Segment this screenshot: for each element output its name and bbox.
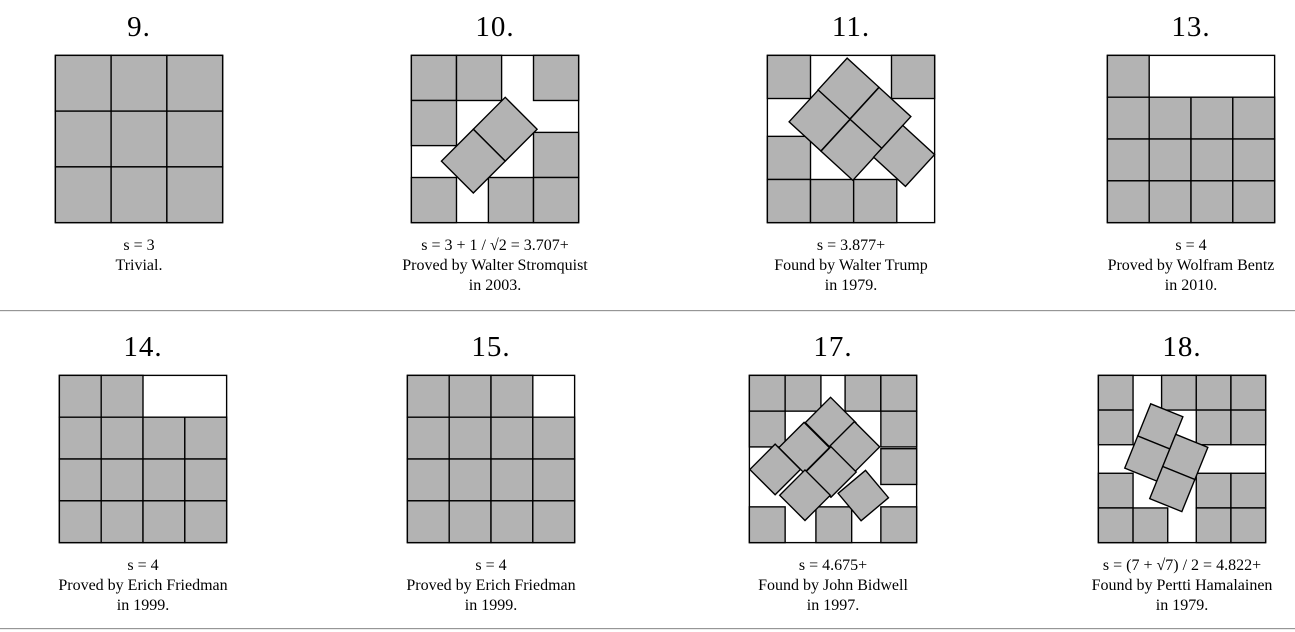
unit-square	[854, 179, 897, 222]
caption-line	[0, 276, 299, 296]
caption-line: Proved by Walter Stromquist	[335, 256, 655, 276]
panel-title: 11.	[691, 10, 1011, 44]
unit-square	[891, 55, 934, 98]
packing-svg	[766, 54, 936, 224]
packing-svg	[406, 374, 576, 544]
unit-square	[767, 179, 810, 222]
packing-diagram	[0, 374, 303, 544]
unit-square	[407, 501, 449, 543]
horizontal-rule	[0, 628, 1295, 629]
unit-square	[1191, 181, 1233, 223]
unit-square	[456, 55, 501, 100]
unit-square	[491, 375, 533, 417]
unit-square	[1149, 139, 1191, 181]
unit-square	[411, 178, 456, 223]
unit-square	[749, 375, 785, 411]
unit-square	[111, 111, 167, 167]
unit-square	[101, 459, 143, 501]
caption-line: s = 3	[0, 236, 299, 256]
unit-square	[488, 178, 533, 223]
unit-square	[185, 459, 227, 501]
panel-18: 18. s = (7 + √7) / 2 = 4.822+ Found by P…	[1022, 330, 1295, 616]
unit-square	[1231, 508, 1266, 543]
unit-square	[59, 459, 101, 501]
caption-line: Found by John Bidwell	[673, 576, 993, 596]
unit-square	[1149, 97, 1191, 139]
caption-line: s = 3 + 1 / √2 = 3.707+	[335, 236, 655, 256]
caption-line: Proved by Erich Friedman	[331, 576, 651, 596]
caption-line: s = 4	[0, 556, 303, 576]
panel-13: 13. s = 4 Proved by Wolfram Bentz in 201…	[1031, 10, 1295, 296]
unit-square	[1107, 97, 1149, 139]
unit-square	[1231, 473, 1266, 508]
unit-square	[767, 55, 810, 98]
panel-caption: s = 3 Trivial.	[0, 236, 299, 296]
unit-square	[1196, 473, 1231, 508]
panel-caption: s = 3.877+ Found by Walter Trump in 1979…	[691, 236, 1011, 296]
packing-diagram	[673, 374, 993, 544]
unit-square	[143, 459, 185, 501]
packing-diagram	[335, 54, 655, 224]
caption-line: in 1997.	[673, 596, 993, 616]
unit-square	[1162, 375, 1197, 410]
unit-square	[749, 411, 785, 447]
unit-square	[1149, 181, 1191, 223]
panel-title: 9.	[0, 10, 299, 44]
unit-square	[811, 179, 854, 222]
unit-square	[411, 100, 456, 145]
unit-square	[881, 449, 917, 485]
unit-square	[1191, 139, 1233, 181]
unit-square	[1107, 181, 1149, 223]
packing-svg	[748, 374, 918, 544]
unit-square	[1233, 181, 1275, 223]
unit-square	[845, 375, 881, 411]
panel-caption: s = 4 Proved by Erich Friedman in 1999.	[0, 556, 303, 616]
unit-square	[449, 459, 491, 501]
unit-square	[491, 459, 533, 501]
panel-title: 10.	[335, 10, 655, 44]
unit-square	[55, 167, 111, 223]
unit-square	[1231, 410, 1266, 445]
horizontal-rule	[0, 310, 1295, 311]
packing-diagram	[1031, 54, 1295, 224]
unit-square	[534, 55, 579, 100]
panel-11: 11. s = 3.877+ Found by Walter Trump in …	[691, 10, 1011, 296]
panel-14: 14. s = 4 Proved by Erich Friedman in 19…	[0, 330, 303, 616]
panel-17: 17. s = 4.675+ Found by John Bidwell in …	[673, 330, 993, 616]
unit-square	[59, 417, 101, 459]
unit-square	[534, 132, 579, 177]
panel-15: 15. s = 4 Proved by Erich Friedman in 19…	[331, 330, 651, 616]
panel-caption: s = (7 + √7) / 2 = 4.822+ Found by Pertt…	[1022, 556, 1295, 616]
unit-square	[1098, 473, 1133, 508]
unit-square	[167, 55, 223, 111]
unit-square	[1098, 508, 1133, 543]
panel-10: 10. s = 3 + 1 / √2 = 3.707+ Proved by Wa…	[335, 10, 655, 296]
packing-svg	[54, 54, 224, 224]
unit-square	[533, 501, 575, 543]
panel-caption: s = 4 Proved by Erich Friedman in 1999.	[331, 556, 651, 616]
unit-square	[1231, 375, 1266, 410]
packing-svg	[1106, 54, 1276, 224]
unit-square	[411, 55, 456, 100]
unit-square	[749, 507, 785, 543]
unit-square	[167, 167, 223, 223]
unit-square	[534, 178, 579, 223]
caption-line: in 1979.	[1022, 596, 1295, 616]
panel-caption: s = 3 + 1 / √2 = 3.707+ Proved by Walter…	[335, 236, 655, 296]
panel-title: 13.	[1031, 10, 1295, 44]
unit-square	[1107, 55, 1149, 97]
unit-square	[1196, 375, 1231, 410]
caption-line: s = 4.675+	[673, 556, 993, 576]
unit-square	[881, 411, 917, 447]
unit-square	[1196, 410, 1231, 445]
unit-square	[143, 501, 185, 543]
packing-diagram	[331, 374, 651, 544]
unit-square	[1107, 139, 1149, 181]
unit-square	[167, 111, 223, 167]
unit-square	[101, 375, 143, 417]
unit-square	[881, 375, 917, 411]
caption-line: Found by Pertti Hamalainen	[1022, 576, 1295, 596]
unit-square	[407, 417, 449, 459]
panel-title: 14.	[0, 330, 303, 364]
unit-square	[59, 375, 101, 417]
caption-line: in 2003.	[335, 276, 655, 296]
unit-square	[816, 507, 852, 543]
caption-line: s = 4	[1031, 236, 1295, 256]
unit-square	[1233, 97, 1275, 139]
unit-square	[111, 55, 167, 111]
packing-svg	[410, 54, 580, 224]
caption-line: s = 4	[331, 556, 651, 576]
caption-line: in 1999.	[0, 596, 303, 616]
unit-square	[491, 417, 533, 459]
unit-square	[1098, 410, 1133, 445]
unit-square	[1196, 508, 1231, 543]
unit-square	[59, 501, 101, 543]
caption-line: in 1979.	[691, 276, 1011, 296]
caption-line: Trivial.	[0, 256, 299, 276]
unit-square	[533, 417, 575, 459]
caption-line: Proved by Wolfram Bentz	[1031, 256, 1295, 276]
unit-square	[491, 501, 533, 543]
unit-square	[55, 111, 111, 167]
caption-line: Found by Walter Trump	[691, 256, 1011, 276]
unit-square	[55, 55, 111, 111]
unit-square	[881, 507, 917, 543]
caption-line: in 1999.	[331, 596, 651, 616]
unit-square	[407, 375, 449, 417]
caption-line: s = (7 + √7) / 2 = 4.822+	[1022, 556, 1295, 576]
unit-square	[449, 375, 491, 417]
unit-square	[1098, 375, 1133, 410]
packing-diagram	[1022, 374, 1295, 544]
unit-square	[767, 136, 810, 179]
unit-square	[449, 501, 491, 543]
unit-square	[1191, 97, 1233, 139]
unit-square	[101, 417, 143, 459]
unit-square	[785, 375, 821, 411]
unit-square	[449, 417, 491, 459]
panel-title: 15.	[331, 330, 651, 364]
unit-square	[1233, 139, 1275, 181]
unit-square	[101, 501, 143, 543]
unit-square	[407, 459, 449, 501]
panel-caption: s = 4.675+ Found by John Bidwell in 1997…	[673, 556, 993, 616]
caption-line: s = 3.877+	[691, 236, 1011, 256]
unit-square	[111, 167, 167, 223]
unit-square	[533, 459, 575, 501]
unit-square	[185, 501, 227, 543]
packing-page: 9. s = 3 Trivial. 10. s = 3 + 1 / √2 = 3…	[0, 0, 1295, 632]
packing-svg	[1097, 374, 1267, 544]
panel-9: 9. s = 3 Trivial.	[0, 10, 299, 296]
panel-caption: s = 4 Proved by Wolfram Bentz in 2010.	[1031, 236, 1295, 296]
packing-diagram	[691, 54, 1011, 224]
packing-diagram	[0, 54, 299, 224]
packing-svg	[58, 374, 228, 544]
unit-square	[1133, 508, 1168, 543]
unit-square	[143, 417, 185, 459]
panel-title: 17.	[673, 330, 993, 364]
caption-line: Proved by Erich Friedman	[0, 576, 303, 596]
unit-square	[185, 417, 227, 459]
panel-title: 18.	[1022, 330, 1295, 364]
caption-line: in 2010.	[1031, 276, 1295, 296]
